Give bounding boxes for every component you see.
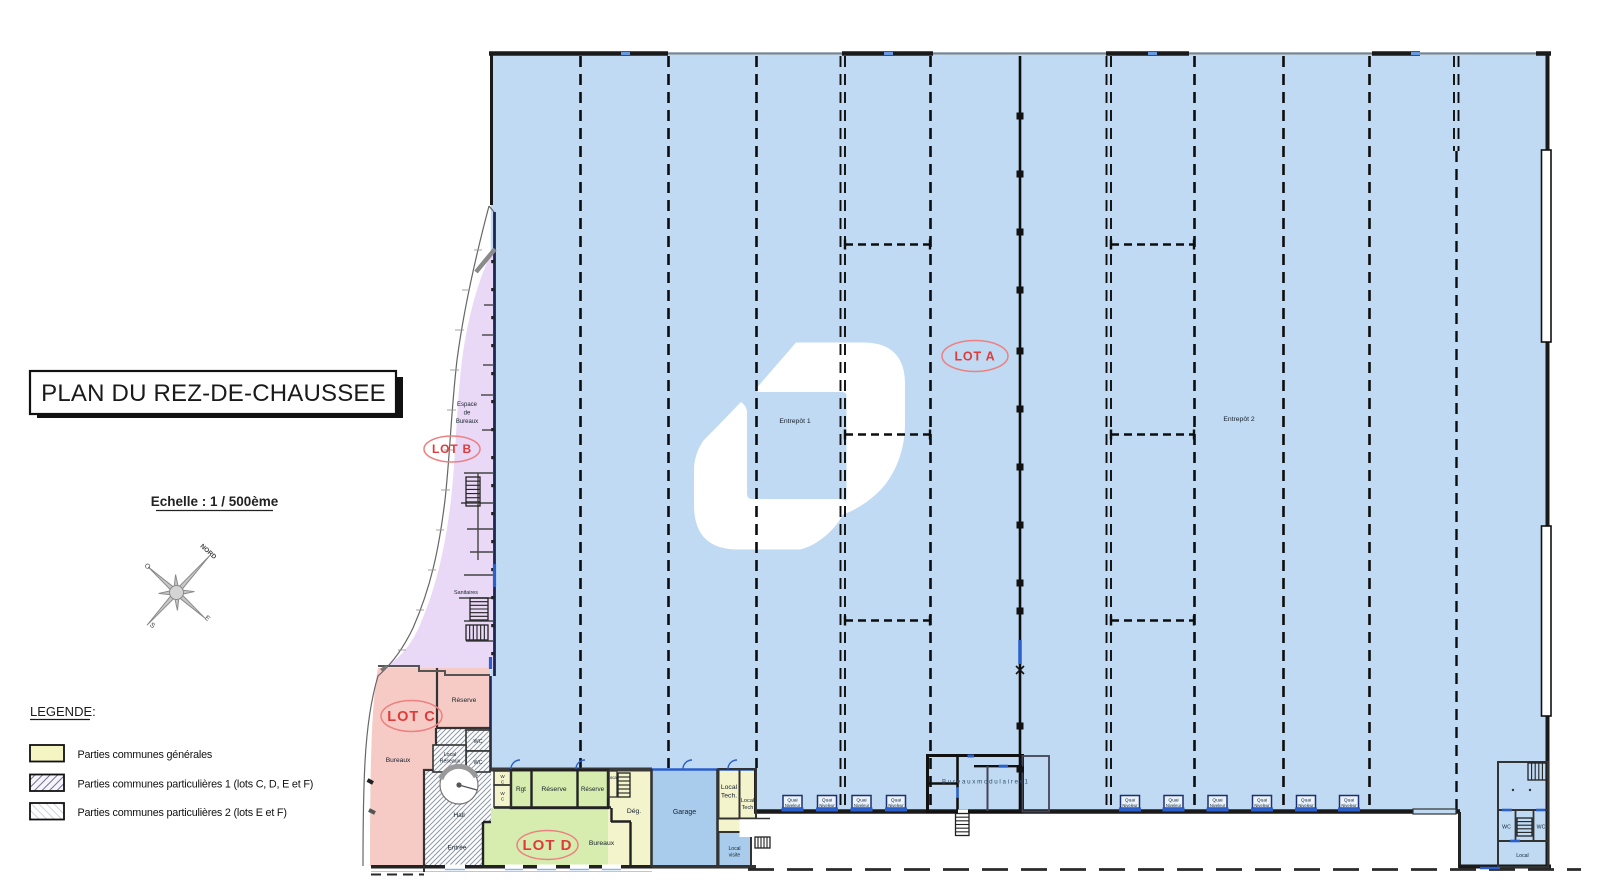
svg-text:Local: Local (729, 846, 741, 852)
svg-text:Parties communes particulières: Parties communes particulières 1 (lots C… (78, 779, 314, 791)
svg-text:Niveleur: Niveleur (1341, 803, 1357, 808)
svg-text:W: W (500, 774, 505, 779)
svg-text:WC: WC (1537, 825, 1546, 831)
svg-text:Local: Local (741, 798, 754, 804)
svg-text:WC: WC (474, 760, 483, 766)
svg-text:Niveleur: Niveleur (1166, 803, 1182, 808)
svg-text:Sanitaires: Sanitaires (454, 590, 478, 596)
svg-text:Rgt: Rgt (516, 786, 526, 793)
svg-text:Niveleur: Niveleur (1122, 803, 1138, 808)
svg-text:Niveleur: Niveleur (854, 803, 870, 808)
svg-text:Bureaux: Bureaux (589, 840, 615, 847)
svg-text:Local: Local (721, 784, 738, 791)
svg-text:Local: Local (444, 752, 456, 758)
svg-text:Bureaux: Bureaux (456, 419, 478, 425)
svg-text:de: de (464, 411, 471, 417)
svg-text:Tech.: Tech. (721, 793, 737, 800)
svg-text:Niveleur: Niveleur (1254, 803, 1270, 808)
svg-text:Entrepôt 1: Entrepôt 1 (779, 418, 811, 425)
svg-text:Niveleur: Niveleur (888, 803, 904, 808)
svg-text:Niveleur: Niveleur (819, 803, 835, 808)
svg-text:LOT A: LOT A (954, 349, 995, 363)
svg-text:Local: Local (1516, 853, 1528, 859)
svg-text:Réserve: Réserve (452, 697, 477, 704)
svg-text:LEGENDE:: LEGENDE: (30, 704, 96, 719)
svg-text:Niveleur: Niveleur (1210, 803, 1226, 808)
svg-text:visite: visite (729, 853, 741, 859)
svg-text:Niveleur: Niveleur (1298, 803, 1314, 808)
svg-text:B u r e a u x m o d u l a i: B u r e a u x m o d u l a i r e s 1 (942, 779, 1029, 786)
svg-text:Entrepôt 2: Entrepôt 2 (1223, 416, 1255, 423)
svg-text:Bureaux: Bureaux (386, 757, 411, 764)
svg-text:Echelle : 1 / 500ème: Echelle : 1 / 500ème (151, 494, 279, 509)
svg-text:Réseaux: Réseaux (440, 759, 461, 765)
svg-text:Tech: Tech (742, 805, 754, 811)
svg-text:PLAN DU REZ-DE-CHAUSSEE: PLAN DU REZ-DE-CHAUSSEE (41, 380, 386, 407)
svg-text:Réserve: Réserve (541, 786, 567, 793)
svg-text:Parties communes particulières: Parties communes particulières 2 (lots E… (78, 807, 287, 819)
svg-text:W: W (500, 791, 505, 796)
svg-text:Réserve: Réserve (581, 786, 605, 793)
svg-text:Espace: Espace (457, 402, 478, 408)
svg-text:Hall: Hall (453, 812, 465, 819)
svg-text:Entrée: Entrée (448, 845, 467, 852)
svg-text:LOT D: LOT D (523, 837, 573, 854)
svg-text:LOT B: LOT B (432, 442, 472, 456)
svg-text:Garage: Garage (673, 809, 696, 816)
svg-text:LOT C: LOT C (387, 709, 436, 725)
svg-text:Parties communes générales: Parties communes générales (78, 749, 213, 761)
svg-text:WC: WC (1502, 825, 1511, 831)
svg-text:WC: WC (474, 739, 483, 745)
svg-text:Niveleur: Niveleur (785, 803, 801, 808)
svg-text:Local: Local (607, 775, 617, 780)
svg-text:Dég.: Dég. (627, 808, 641, 815)
